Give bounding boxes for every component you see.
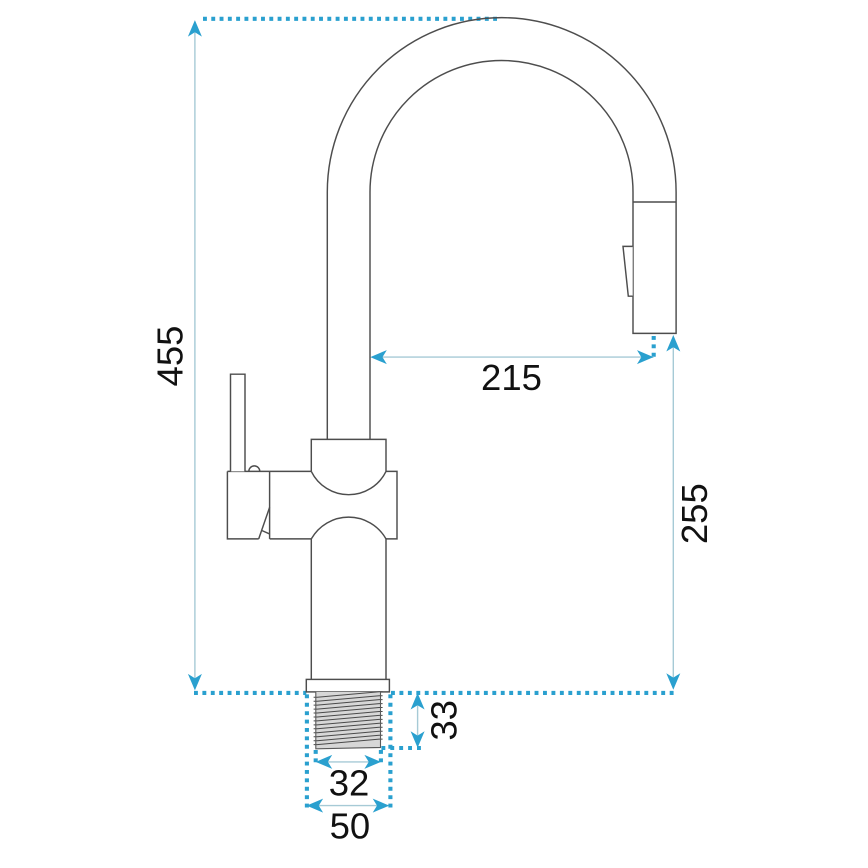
svg-text:455: 455 (149, 326, 190, 387)
svg-text:215: 215 (481, 357, 542, 398)
svg-text:32: 32 (329, 763, 370, 804)
svg-text:255: 255 (674, 483, 715, 544)
svg-text:50: 50 (330, 806, 371, 847)
svg-text:33: 33 (423, 700, 464, 741)
